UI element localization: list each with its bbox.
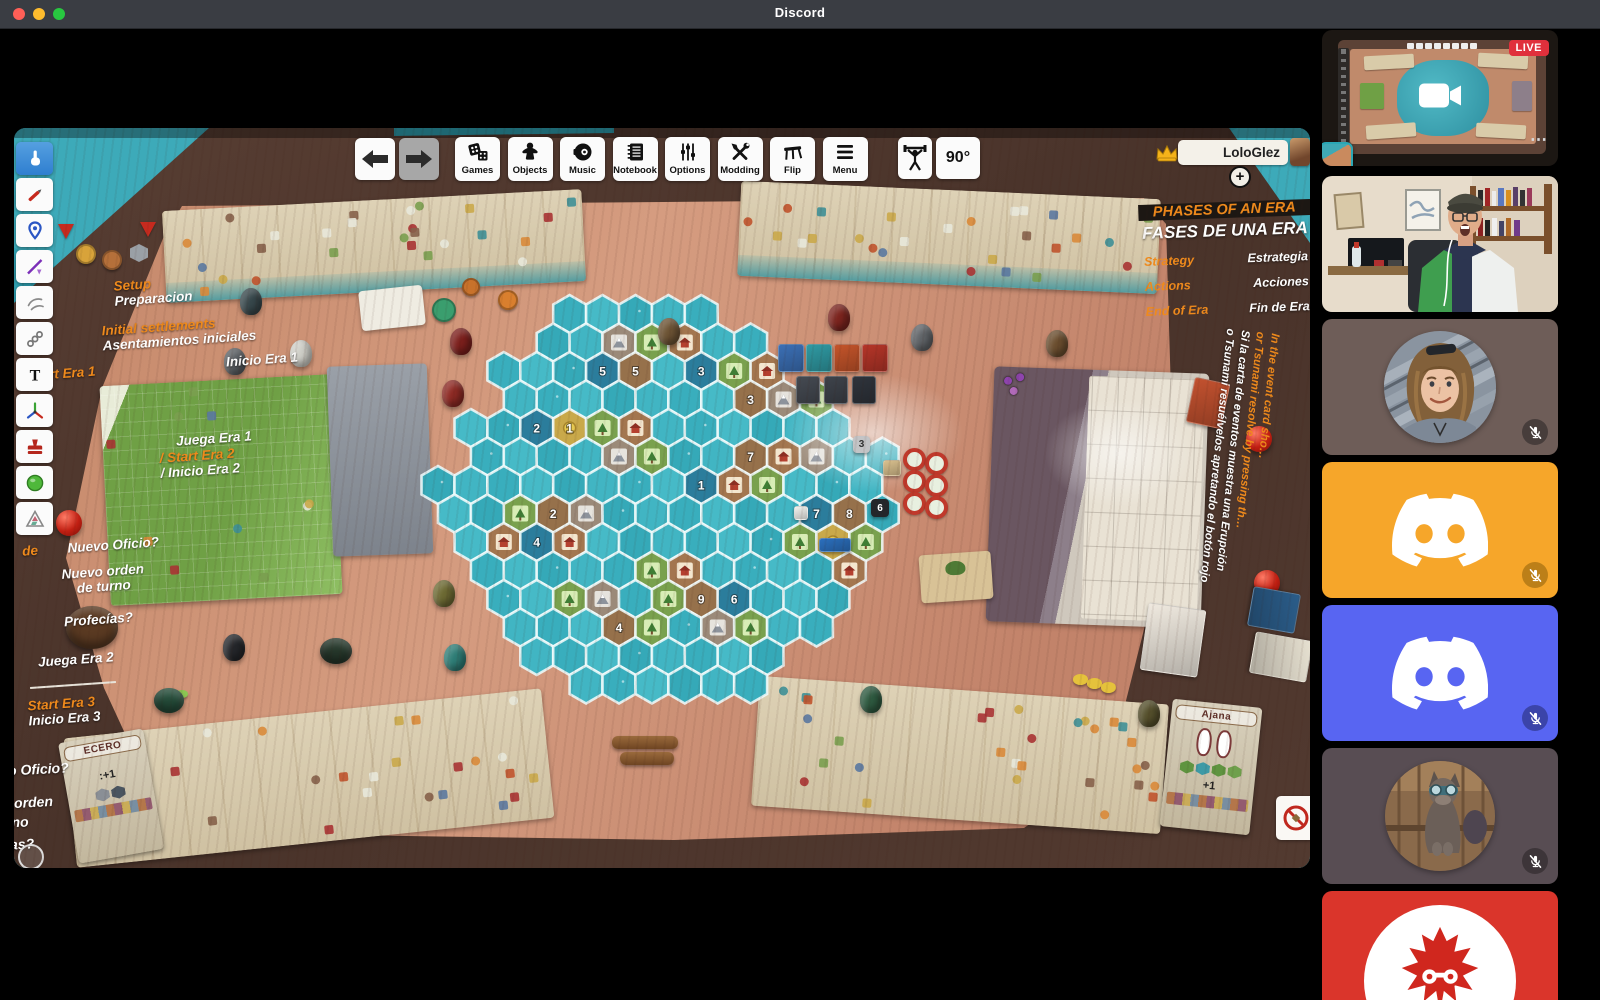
board-component	[773, 231, 782, 240]
board-component	[855, 234, 864, 243]
player-board-top-right	[737, 181, 1161, 294]
board-component	[1014, 705, 1024, 715]
tts-button-label: Flip	[784, 165, 801, 176]
board-component	[410, 228, 419, 237]
start-tool-button[interactable]	[16, 466, 53, 499]
board-component	[819, 759, 829, 769]
board-component	[862, 799, 872, 809]
player-meeple	[450, 328, 472, 355]
board-component	[200, 286, 209, 295]
svg-text:T: T	[29, 367, 40, 384]
line	[24, 256, 46, 278]
tts-toolbar: GamesObjectsMusicNotebookOptionsModdingF…	[14, 128, 1310, 188]
board-component	[424, 792, 434, 802]
timeline-fragment-oficio: o Oficio?	[14, 759, 69, 778]
weightlifter-icon	[903, 144, 927, 172]
streamer-avatar	[1322, 142, 1353, 166]
tts-button-label: Modding	[720, 165, 760, 176]
hex-water	[800, 609, 833, 647]
board-component	[1019, 206, 1028, 215]
board-component	[406, 206, 415, 215]
tts-button-label: Options	[670, 165, 706, 176]
dice-icon	[466, 140, 490, 164]
hex-number: 6	[731, 593, 738, 607]
tts-button-label: Notebook	[613, 165, 657, 176]
hex-water	[668, 666, 701, 704]
participant-tile-user1[interactable]	[1322, 319, 1558, 455]
board-component	[529, 773, 539, 783]
redo-forward-button[interactable]	[399, 138, 439, 180]
timeline-setup: Setup Preparacion	[113, 273, 193, 308]
board-component	[1105, 237, 1114, 246]
hand-tool-button[interactable]	[16, 142, 53, 175]
back-arrow-icon	[362, 150, 388, 168]
participant-tile-bot[interactable]	[1322, 891, 1558, 1000]
board-component	[996, 748, 1006, 758]
board-component	[943, 224, 952, 233]
board-component	[1100, 810, 1110, 820]
component-tray	[358, 285, 426, 331]
small-card	[1247, 586, 1301, 634]
round-token	[925, 474, 948, 497]
small-card	[862, 344, 888, 372]
prism-tool-button[interactable]	[16, 502, 53, 535]
player-meeple	[1138, 700, 1160, 727]
player-meeple	[240, 288, 262, 315]
board-component	[567, 198, 576, 207]
ping	[24, 220, 46, 242]
tts-menu-button[interactable]: Menu	[823, 137, 868, 181]
player-meeple	[1046, 330, 1068, 357]
tts-notebook-button[interactable]: Notebook	[613, 137, 658, 181]
hex-number: 2	[550, 507, 557, 521]
host-crown-icon	[1156, 144, 1178, 162]
rotate-degree-button[interactable]: 90°	[936, 137, 980, 179]
hex-water	[570, 666, 603, 704]
small-card	[819, 538, 851, 552]
player-meeple	[860, 686, 882, 713]
round-token	[903, 448, 926, 471]
board-component	[325, 825, 335, 835]
window-titlebar: Discord	[0, 0, 1600, 29]
log-token	[612, 736, 678, 749]
board-component	[783, 204, 792, 213]
tts-objects-button[interactable]: Objects	[508, 137, 553, 181]
board-component	[1032, 273, 1041, 282]
wooden-bowl	[320, 638, 352, 664]
timeline-start-era3: Start Era 3 Inicio Era 3	[27, 694, 101, 729]
board-component	[518, 257, 527, 266]
board-component	[1109, 717, 1119, 727]
board-component	[257, 243, 266, 252]
phases-panel: PHASES OF AN ERA FASES DE UNA ERA Strate…	[1138, 199, 1310, 319]
token-coin	[498, 290, 518, 310]
token-disc	[1101, 682, 1116, 693]
prism	[24, 508, 46, 530]
board-component	[1149, 792, 1159, 802]
participant-tile-stream[interactable]: LIVE ⋯	[1322, 30, 1558, 166]
board-component	[169, 565, 178, 574]
red-arrow-marker	[58, 224, 74, 239]
undo-back-button[interactable]	[355, 138, 395, 180]
board-component	[394, 716, 404, 726]
board-component	[189, 387, 198, 396]
board-component	[497, 752, 507, 762]
board-component	[369, 772, 379, 782]
board-component	[799, 777, 809, 787]
forward-arrow-icon	[406, 150, 432, 168]
phase-row-strategy: Strategy Estrategia	[1140, 249, 1310, 269]
board-component	[348, 218, 357, 227]
mic-muted-icon	[1522, 705, 1548, 731]
screenshare-video[interactable]: 553321712784964 36 ECERO :+1 Ajana +1 Se…	[14, 128, 1310, 868]
timeline-fragment-orden: orden	[14, 793, 53, 811]
hex-number: 1	[698, 479, 705, 493]
screenshare-camera-icon	[1417, 81, 1463, 116]
hex-number: 8	[846, 507, 853, 521]
board-component	[174, 412, 183, 421]
board-component	[807, 234, 816, 243]
more-options-icon[interactable]: ⋯	[1530, 130, 1549, 150]
grab-strength-button[interactable]	[898, 137, 932, 179]
player-meeple	[444, 644, 466, 671]
hex-number: 3	[747, 393, 754, 407]
board-component	[498, 801, 508, 811]
window-title: Discord	[0, 5, 1600, 20]
board-component	[203, 728, 213, 738]
board-component	[967, 217, 976, 226]
hamburger-icon	[833, 140, 857, 164]
player-meeple	[828, 304, 850, 331]
text: T	[24, 364, 46, 386]
flick	[24, 292, 46, 314]
token-coin	[432, 298, 456, 322]
player-meeple	[658, 318, 680, 345]
hex-number: 2	[533, 422, 540, 436]
round-token	[925, 452, 948, 475]
board-component	[1140, 760, 1150, 770]
board-component	[1001, 267, 1010, 276]
token-disc	[1087, 678, 1102, 689]
board-component	[477, 230, 486, 239]
board-component	[1127, 738, 1137, 748]
board-component	[1072, 234, 1081, 243]
board-component	[233, 524, 242, 533]
marker-tool-button[interactable]	[16, 178, 53, 211]
board-component	[900, 237, 909, 246]
board-component	[257, 726, 267, 736]
board-component	[1118, 722, 1128, 732]
board-component	[471, 756, 481, 766]
log-token	[620, 752, 674, 765]
stamp-tool-button[interactable]	[16, 430, 53, 463]
board-component	[170, 767, 180, 777]
token-coin	[102, 250, 122, 270]
hex-number: 7	[747, 450, 754, 464]
wooden-bowl	[154, 688, 184, 713]
maple-leaf-icon	[1392, 923, 1488, 1000]
board-component	[453, 762, 463, 772]
board-component	[198, 263, 207, 272]
joint	[24, 328, 46, 350]
participant-avatar	[1384, 331, 1496, 443]
participant-tile-user4[interactable]	[1322, 748, 1558, 884]
board-component	[543, 213, 552, 222]
board-component	[106, 439, 115, 448]
hex-number: 4	[616, 621, 623, 635]
board-component	[1085, 778, 1095, 788]
highlight-glow	[1044, 398, 1194, 508]
board-component	[868, 244, 877, 253]
hex-number: 7	[813, 507, 820, 521]
board-component	[322, 228, 331, 237]
hex-number: 4	[533, 536, 540, 550]
board-component	[415, 201, 424, 210]
live-badge: LIVE	[1509, 40, 1549, 56]
board-component	[407, 241, 416, 250]
marker	[24, 184, 46, 206]
token-disc	[1073, 674, 1088, 685]
host-avatar	[1290, 138, 1310, 166]
board-component	[391, 757, 401, 767]
small-card	[834, 344, 860, 372]
token-coin	[76, 244, 96, 264]
red-arrow-marker	[140, 222, 156, 237]
character-card-ajana: Ajana +1	[1160, 699, 1263, 836]
board-component	[521, 237, 530, 246]
participant-avatar	[1385, 761, 1495, 871]
red-button-ball	[56, 510, 82, 536]
hex-number: 5	[632, 365, 639, 379]
board-component	[207, 411, 216, 420]
board-component	[1073, 718, 1083, 728]
tts-options-button[interactable]: Options	[665, 137, 710, 181]
player-meeple	[911, 324, 933, 351]
player-meeple	[223, 634, 245, 661]
tts-button-label: Menu	[833, 165, 858, 176]
tts-music-button[interactable]: Music	[560, 137, 605, 181]
timeline-fragment-turno: rno	[14, 813, 29, 830]
tts-games-button[interactable]: Games	[455, 137, 500, 181]
board-component	[505, 768, 515, 778]
tts-button-label: Games	[462, 165, 494, 176]
small-card	[824, 376, 848, 404]
board-component	[1049, 210, 1058, 219]
board-component	[878, 248, 887, 257]
small-card	[883, 460, 901, 476]
die: 3	[853, 436, 870, 453]
stamp	[24, 436, 46, 458]
hex-water	[701, 666, 734, 704]
text-tool-button[interactable]: T	[16, 358, 53, 391]
hex-number: 5	[599, 365, 606, 379]
board-component	[1123, 262, 1132, 271]
board-component	[270, 231, 279, 240]
board-component	[1150, 781, 1160, 791]
webcam-video	[1322, 176, 1558, 312]
hand-marker-icon	[18, 844, 44, 868]
board-component	[438, 790, 448, 800]
gizmo-tool-button[interactable]	[16, 394, 53, 427]
board-component	[1010, 206, 1019, 215]
round-token	[903, 492, 926, 515]
tts-button-label: Music	[569, 165, 596, 176]
hex-water	[636, 666, 669, 704]
board-component	[985, 708, 995, 718]
player-meeple	[433, 580, 455, 607]
board-component	[1012, 775, 1022, 785]
board-component	[1134, 780, 1144, 790]
board-component	[835, 737, 845, 747]
board-component	[887, 213, 896, 222]
phases-title-es: FASES DE UNA ERA	[1139, 218, 1310, 244]
die: 6	[871, 499, 889, 517]
board-component	[510, 792, 520, 802]
board-component	[182, 239, 191, 248]
small-card	[778, 344, 804, 372]
board-component	[987, 255, 996, 264]
tts-button-label: Objects	[513, 165, 548, 176]
tts-flip-button[interactable]: Flip	[770, 137, 815, 181]
participant-tile-user2[interactable]	[1322, 462, 1558, 598]
bot-avatar	[1364, 905, 1516, 1000]
board-component	[208, 816, 218, 826]
small-card	[806, 344, 832, 372]
hex-number: 9	[698, 593, 705, 607]
board-component	[424, 251, 433, 260]
hex-water	[520, 637, 553, 675]
timeline-start-era2: / Start Era 2 / Inicio Era 2	[159, 445, 240, 480]
board-component	[1090, 724, 1100, 734]
board-component	[1052, 243, 1061, 252]
table-icon	[781, 140, 805, 164]
gizmo	[24, 400, 46, 422]
tools-icon	[728, 140, 752, 164]
board-component	[1022, 231, 1031, 240]
no-draw-icon	[1276, 796, 1310, 840]
round-token	[903, 470, 926, 493]
hex-water	[603, 666, 636, 704]
board-component	[329, 248, 338, 257]
hex-number: 1	[566, 422, 573, 436]
host-name-pill[interactable]: LoloGlez	[1178, 140, 1288, 165]
timeline-turn-order: Nuevo orden de turno	[61, 561, 145, 597]
board-component	[855, 763, 865, 773]
mic-muted-icon	[1522, 562, 1548, 588]
small-card	[796, 376, 820, 404]
player-meeple	[442, 380, 464, 407]
speaker-icon	[571, 140, 595, 164]
notebook-icon	[623, 140, 647, 164]
meeple-icon	[518, 140, 542, 164]
add-player-button[interactable]: +	[1229, 166, 1251, 188]
tts-modding-button[interactable]: Modding	[718, 137, 763, 181]
board-component	[744, 217, 753, 226]
board-component	[305, 499, 314, 508]
line-tool-button[interactable]	[16, 250, 53, 283]
host-name: LoloGlez	[1223, 145, 1280, 160]
hex-number: 3	[698, 365, 705, 379]
ping-tool-button[interactable]	[16, 214, 53, 247]
board-component	[1018, 761, 1028, 771]
round-token	[925, 496, 948, 519]
joint-tool-button[interactable]	[16, 322, 53, 355]
token-coin	[462, 278, 480, 296]
hand	[24, 148, 46, 170]
board-component	[311, 775, 321, 785]
board-component	[817, 207, 826, 216]
discord-window: Discord	[0, 0, 1600, 1000]
card-title: Ajana	[1175, 704, 1258, 727]
small-card	[852, 376, 876, 404]
start	[24, 472, 46, 494]
board-component	[439, 239, 448, 248]
phase-row-actions: Actions Acciones	[1141, 274, 1310, 294]
board-component	[339, 772, 349, 782]
board-component	[966, 267, 975, 276]
flick-tool-button[interactable]	[16, 286, 53, 319]
board-component	[465, 203, 474, 212]
board-component	[218, 275, 227, 284]
board-component	[260, 573, 269, 582]
rotate-degree-value: 90°	[946, 149, 970, 167]
mic-muted-icon	[1522, 419, 1548, 445]
participant-tile-webcam[interactable]	[1322, 176, 1558, 312]
small-card	[794, 506, 808, 520]
participant-tile-user3[interactable]	[1322, 605, 1558, 741]
discord-logo-icon	[1392, 636, 1488, 710]
board-component	[797, 238, 806, 247]
board-component	[225, 213, 234, 222]
sliders-icon	[676, 140, 700, 164]
board-component	[1027, 734, 1037, 744]
hex-island-map: 553321712784964	[418, 290, 938, 730]
board-component	[362, 788, 372, 798]
discord-logo-icon	[1392, 493, 1488, 567]
hex-water	[734, 666, 767, 704]
mic-muted-icon	[1522, 848, 1548, 874]
